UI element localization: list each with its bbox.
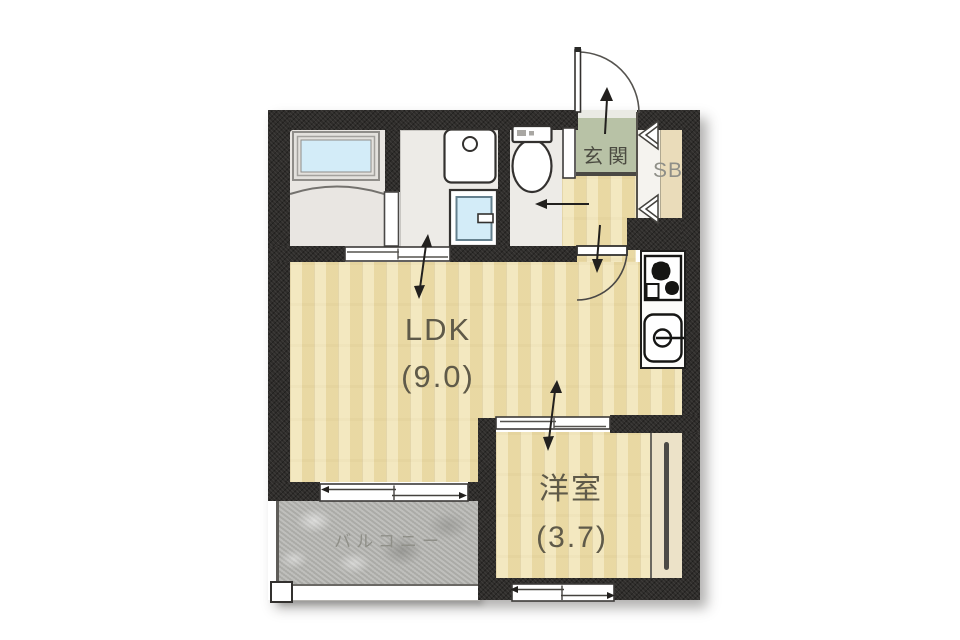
- balcony-label: バルコニー: [289, 533, 489, 550]
- wall-bottom: [478, 578, 700, 600]
- wall-western-top-right: [610, 415, 700, 433]
- wall-western-left: [478, 418, 496, 600]
- genkan-label: 玄関: [576, 147, 640, 167]
- toilet-room-floor: [510, 130, 562, 246]
- ldk-floor-lower: [290, 418, 478, 482]
- floor-plan: 玄関 SB LDK (9.0) 洋室 (3.7) バルコニー: [0, 0, 960, 640]
- wall-bath-washroom: [385, 130, 400, 192]
- entrance-door-arc: [578, 52, 639, 113]
- closet: [650, 432, 684, 578]
- wall-washroom-toilet: [498, 130, 510, 262]
- shoe-box-label: SB: [646, 160, 690, 181]
- wall-top-left: [268, 110, 578, 130]
- wall-under-shoebox: [627, 218, 682, 250]
- entrance-door: [575, 47, 640, 113]
- balcony-rail-bottom: [276, 584, 480, 601]
- washroom-floor: [400, 130, 500, 248]
- balcony-rail-left: [276, 501, 279, 584]
- wall-ldk-bottom-left: [268, 482, 320, 501]
- kitchen-counter: [640, 250, 686, 369]
- bathroom-floor: [288, 128, 390, 254]
- wall-south-of-washroom: [450, 246, 577, 262]
- wall-left: [268, 110, 290, 501]
- balcony-corner-post: [270, 581, 293, 603]
- ldk-size-label: (9.0): [338, 361, 538, 392]
- entrance-door-leaf: [575, 50, 581, 112]
- entrance-door-hinge: [575, 47, 582, 52]
- western-room-size-label: (3.7): [472, 523, 672, 553]
- ldk-label: LDK: [338, 314, 538, 345]
- western-room-label: 洋室: [471, 475, 671, 505]
- wall-toilet-stub: [562, 110, 578, 130]
- wall-south-of-bath: [268, 246, 345, 262]
